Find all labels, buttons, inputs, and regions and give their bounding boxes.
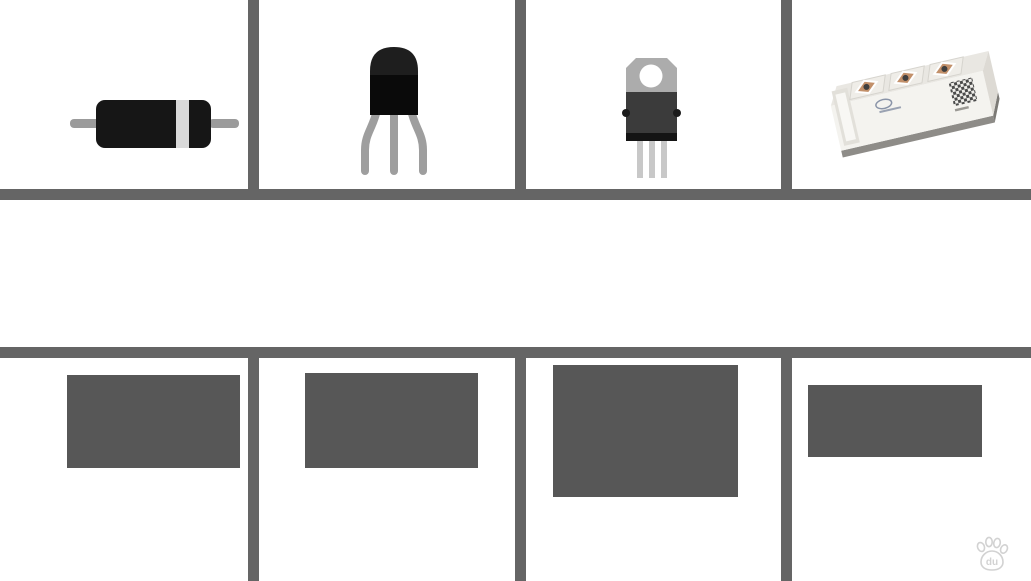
diagram-doped-crystal — [553, 365, 738, 497]
watermark: du — [973, 535, 1015, 573]
diagram-pn-junction-inner — [312, 380, 471, 461]
to220-leg — [637, 141, 643, 178]
panel-to220-package — [526, 0, 781, 189]
grid-divider-horizontal-1 — [0, 189, 1031, 200]
igbt-power-module-icon — [792, 0, 1031, 189]
grid-divider-horizontal-2 — [0, 347, 1031, 358]
grid-divider-vertical-bottom-2 — [515, 358, 526, 581]
to220-package-icon — [526, 0, 781, 189]
to220-leg — [661, 141, 667, 178]
cover-canvas: du — [0, 0, 1031, 581]
to92-transistor-icon — [259, 0, 515, 189]
diode-lead-right — [209, 119, 239, 128]
baidu-paw-icon: du — [973, 535, 1011, 573]
grid-divider-vertical-bottom-1 — [248, 358, 259, 581]
grid-divider-vertical-top-1 — [248, 0, 259, 189]
axial-diode-icon — [0, 0, 248, 189]
diagram-stripes-inner — [816, 393, 974, 449]
panel-to92-transistor — [259, 0, 515, 189]
panel-axial-diode — [0, 0, 248, 189]
baidu-du-text: du — [986, 557, 998, 568]
diagram-conductor-insulator — [67, 375, 240, 468]
grid-divider-vertical-bottom-3 — [781, 358, 792, 581]
grid-divider-vertical-top-3 — [781, 0, 792, 189]
diode-cathode-band — [176, 100, 189, 148]
to220-base-strip — [626, 133, 677, 141]
diode-lead-left — [70, 119, 100, 128]
to220-body — [626, 92, 677, 133]
diagram-stripes — [808, 385, 982, 457]
module-group — [827, 51, 1005, 158]
to220-mounting-hole — [640, 65, 663, 88]
panel-igbt-module — [792, 0, 1031, 189]
to92-body-lower — [370, 75, 418, 115]
diode-body — [96, 100, 211, 148]
page-title — [0, 200, 1031, 347]
diagram-doped-crystal-inner — [560, 372, 731, 490]
to220-notch — [622, 109, 630, 117]
to220-leg — [649, 141, 655, 178]
to92-legs — [365, 110, 423, 171]
diagram-pn-junction — [305, 373, 478, 468]
diagram-conductor-insulator-inner — [74, 382, 233, 461]
to220-notch — [673, 109, 681, 117]
grid-divider-vertical-top-2 — [515, 0, 526, 189]
